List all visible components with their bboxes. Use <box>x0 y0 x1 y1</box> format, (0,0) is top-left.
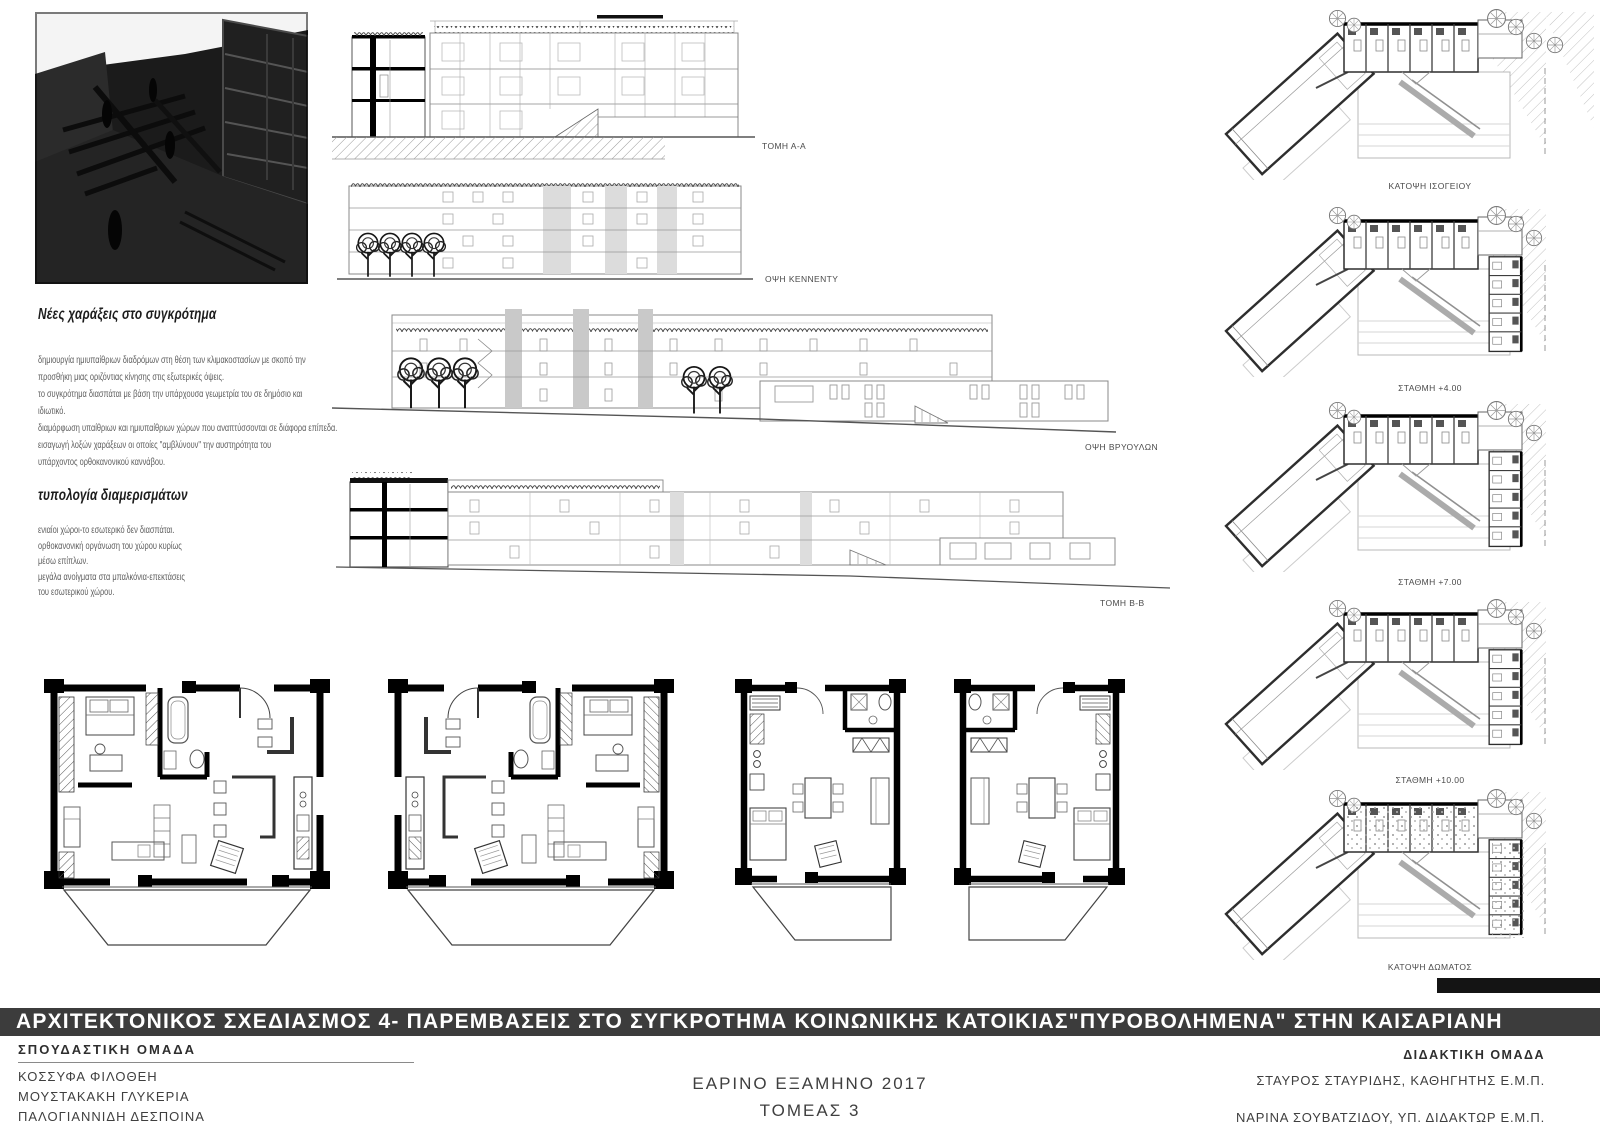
notes-paragraph-typology: ενιαίοι χώροι-το εσωτερικό δεν διασπάται… <box>38 523 364 601</box>
teacher-name: ΝΑΡΙΝΑ ΣΟΥΒΑΤΖΙΔΟΥ, ΥΠ. ΔΙΔΑΚΤΩΡ Ε.Μ.Π. <box>1236 1110 1545 1125</box>
students-heading: ΣΠΟΥΔΑΣΤΙΚΗ ΟΜΑΔΑ <box>18 1042 414 1063</box>
note-line: δημιουργία ημιυπαίθριων διαδρόμων στη θέ… <box>38 352 364 369</box>
drawing-label-section-bb: ΤΟΜΗ Β-Β <box>1100 598 1145 608</box>
students-section: ΣΠΟΥΔΑΣΤΙΚΗ ΟΜΑΔΑ ΚΟΣΣΥΦΑ ΦΙΛΟΘΕΗ ΜΟΥΣΤΑ… <box>18 1042 418 1123</box>
note-line: υπάρχοντος ορθοκανονικού καννάβου. <box>38 454 364 471</box>
notes-heading-typology: τυπολογία διαμερισμάτων <box>38 487 364 505</box>
site-plan-label-roof: ΚΑΤΟΨΗ ΔΩΜΑΤΟΣ <box>1330 962 1530 972</box>
note-line: εισαγωγή λοξών χαράξεων οι οποίες "αμβλύ… <box>38 437 364 454</box>
teachers-heading: ΔΙΔΑΚΤΙΚΗ ΟΜΑΔΑ <box>1236 1048 1545 1062</box>
project-notes: Νέες χαράξεις στο συγκρότημα δημιουργία … <box>38 306 364 601</box>
site-plan-level7 <box>1148 400 1598 572</box>
note-line: διαμόρφωση υπαίθριων και ημιυπαίθριων χώ… <box>38 420 364 437</box>
apartment-plan-3 <box>733 658 908 946</box>
note-line: ενιαίοι χώροι-το εσωτερικό δεν διασπάται… <box>38 523 364 539</box>
board-title-bar: ΑΡΧΙΤΕΚΤΟΝΙΚΟΣ ΣΧΕΔΙΑΣΜΟΣ 4- ΠΑΡΕΜΒΑΣΕΙΣ… <box>0 1008 1600 1036</box>
footer-corner-strip <box>1437 978 1600 993</box>
apartment-plan-1 <box>42 657 332 949</box>
note-line: το συγκρότημα διασπάται με βάση την υπάρ… <box>38 386 364 403</box>
site-plan-level4 <box>1148 205 1598 377</box>
model-photo <box>35 12 308 284</box>
semester-label: ΕΑΡΙΝΟ ΕΞΑΜΗΝΟ 2017 <box>610 1070 1010 1097</box>
note-line: μέσω επίπλων. <box>38 554 364 570</box>
semester-section: ΕΑΡΙΝΟ ΕΞΑΜΗΝΟ 2017 ΤΟΜΕΑΣ 3 <box>610 1070 1010 1124</box>
site-plan-label-level4: ΣΤΑΘΜΗ +4.00 <box>1330 383 1530 393</box>
site-plan-label-level7: ΣΤΑΘΜΗ +7.00 <box>1330 577 1530 587</box>
site-plan-ground <box>1148 8 1598 180</box>
presentation-board: Νέες χαράξεις στο συγκρότημα δημιουργία … <box>0 0 1600 1131</box>
student-name: ΚΟΣΣΥΦΑ ΦΙΛΟΘΕΗ <box>18 1071 418 1083</box>
note-line: του εσωτερικού χώρου. <box>38 585 364 601</box>
apartment-plan-2 <box>386 657 676 949</box>
teacher-name: ΣΤΑΥΡΟΣ ΣΤΑΥΡΙΔΗΣ, ΚΑΘΗΓΗΤΗΣ Ε.Μ.Π. <box>1236 1073 1545 1088</box>
student-name: ΠΑΛΟΓΙΑΝΝΙΔΗ ΔΕΣΠΟΙΝΑ <box>18 1111 418 1123</box>
teachers-section: ΔΙΔΑΚΤΙΚΗ ΟΜΑΔΑ ΣΤΑΥΡΟΣ ΣΤΑΥΡΙΔΗΣ, ΚΑΘΗΓ… <box>1236 1048 1545 1125</box>
student-name: ΜΟΥΣΤΑΚΑΚΗ ΓΛΥΚΕΡΙΑ <box>18 1091 418 1103</box>
note-line: ορθοκανονική οργάνωση του χώρου κυρίως <box>38 539 364 555</box>
sector-label: ΤΟΜΕΑΣ 3 <box>610 1097 1010 1124</box>
drawing-label-section-aa: ΤΟΜΗ Α-Α <box>762 141 806 151</box>
note-line: μεγάλα ανοίγματα στα μπαλκόνια-επεκτάσει… <box>38 570 364 586</box>
notes-paragraph-tracings: δημιουργία ημιυπαίθριων διαδρόμων στη θέ… <box>38 352 364 471</box>
note-line: ιδιωτικό. <box>38 403 364 420</box>
site-plan-roof <box>1148 788 1598 960</box>
site-plan-level10 <box>1148 598 1598 770</box>
drawing-section-bb <box>330 450 1175 602</box>
drawing-elevation-kennedy <box>333 172 758 287</box>
drawing-elevation-vryoulon <box>330 293 1120 443</box>
apartment-plan-4 <box>952 658 1127 946</box>
notes-heading-tracings: Νέες χαράξεις στο συγκρότημα <box>38 306 364 324</box>
drawing-section-aa <box>330 5 760 163</box>
site-plan-label-ground: ΚΑΤΟΨΗ ΙΣΟΓΕΙΟΥ <box>1330 181 1530 191</box>
site-plan-label-level10: ΣΤΑΘΜΗ +10.00 <box>1330 775 1530 785</box>
drawing-label-elevation-kennedy: ΟΨΗ ΚΕΝΝΕΝΤΥ <box>765 274 838 284</box>
note-line: προσθήκη μιας οριζόντιας κίνησης στις εξ… <box>38 369 364 386</box>
board-title: ΑΡΧΙΤΕΚΤΟΝΙΚΟΣ ΣΧΕΔΙΑΣΜΟΣ 4- ΠΑΡΕΜΒΑΣΕΙΣ… <box>0 1010 1503 1034</box>
model-photo-image <box>35 12 308 284</box>
